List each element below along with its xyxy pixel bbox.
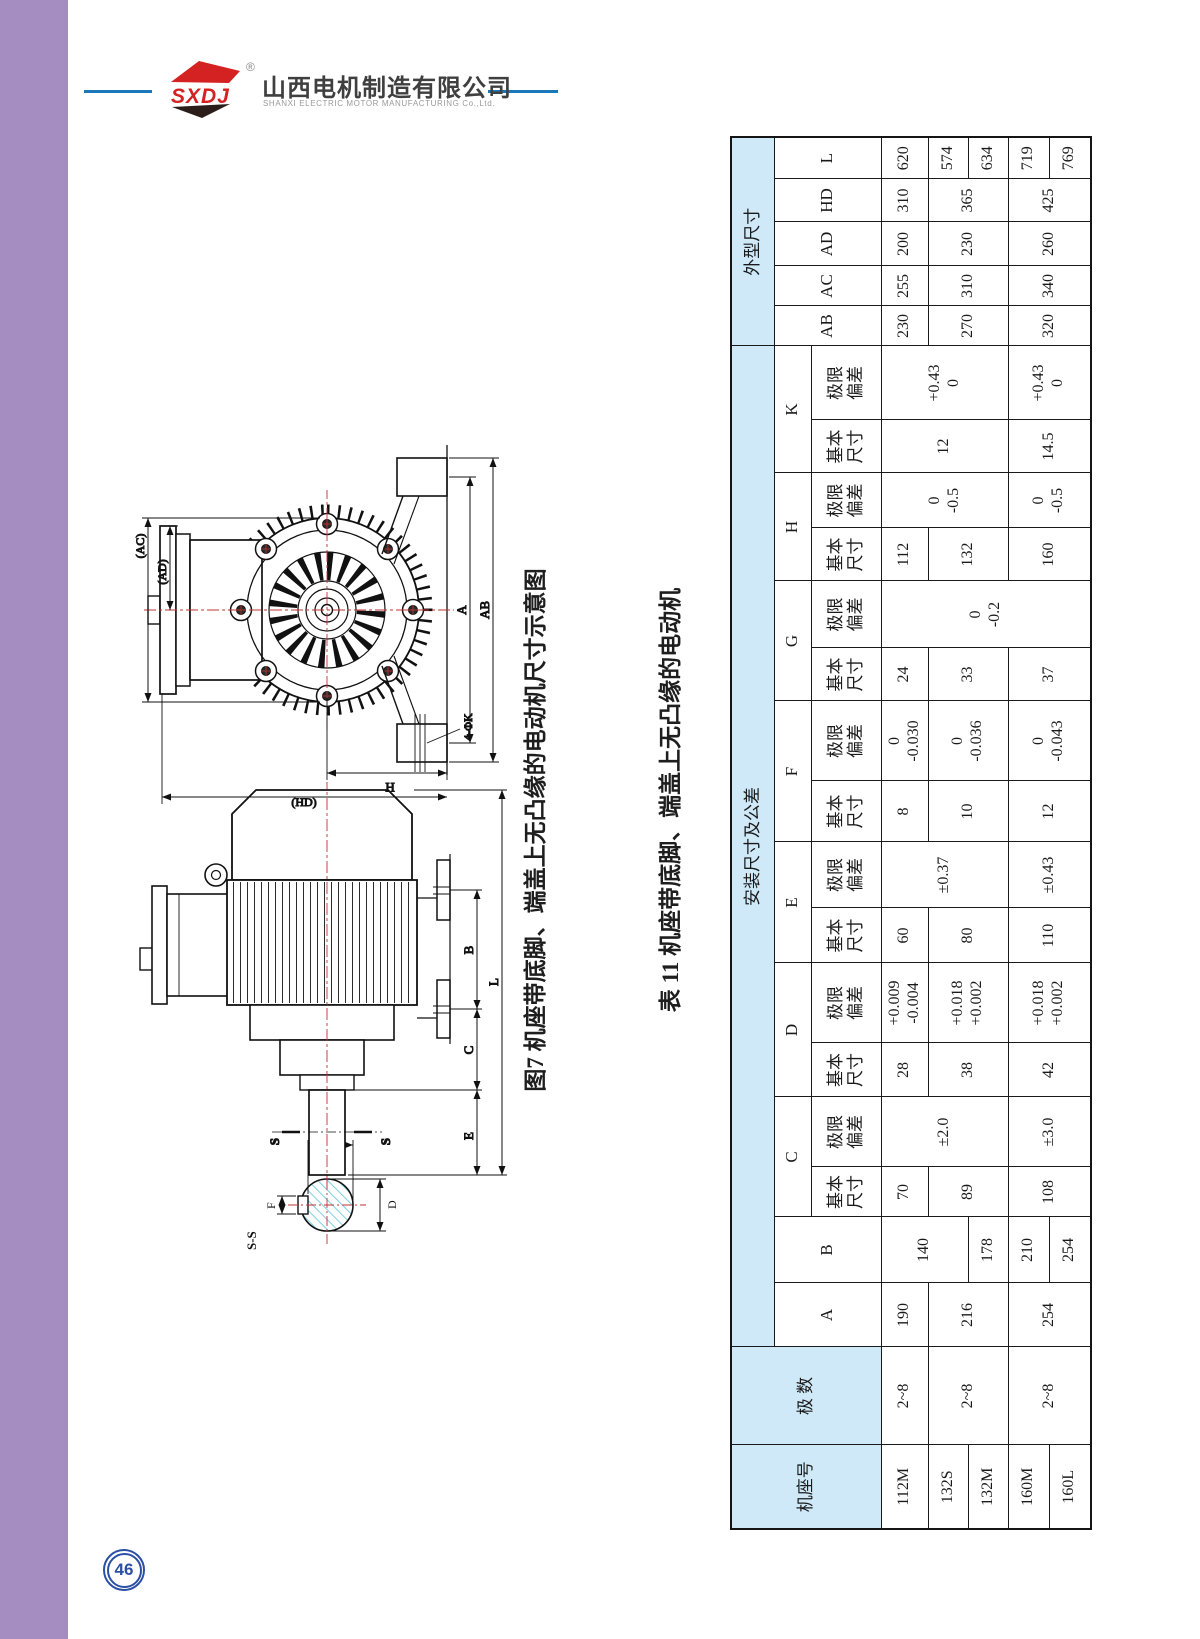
section-view-title: S-S: [244, 1231, 259, 1250]
dim-label-B: B: [461, 945, 476, 954]
company-name-cn: 山西电机制造有限公司: [262, 68, 492, 103]
cell-112M-H: 112: [881, 528, 928, 581]
cell-112M-E: 60: [881, 908, 928, 963]
cell-G-tol-all: 0 -0.2: [881, 581, 1091, 648]
cell-132S-poles: 2~8: [928, 1347, 1008, 1445]
cell-160M-F: 12: [1008, 781, 1091, 842]
header-col-A: A: [774, 1283, 881, 1347]
cell-112M-H-tol: 0 -0.5: [881, 473, 1008, 528]
cell-132S-F-tol: 0 -0.036: [928, 701, 1008, 781]
page-number: 46: [107, 1553, 142, 1588]
cell-112M-poles: 2~8: [881, 1347, 928, 1445]
header-G-basic: 基本 尺寸: [811, 648, 881, 701]
header-K-tol: 极限 偏差: [811, 346, 881, 420]
cell-160M-G: 37: [1008, 648, 1091, 701]
cell-132S-F: 10: [928, 781, 1008, 842]
header-G-tol: 极限 偏差: [811, 581, 881, 648]
header-mounting-group: 安装尺寸及公差: [731, 346, 774, 1347]
header-col-D: D: [774, 963, 811, 1097]
dim-label-AC: (AC): [133, 534, 147, 559]
cell-132M-B: 178: [968, 1217, 1008, 1283]
cell-112M-D: 28: [881, 1043, 928, 1097]
cell-160M-HD: 425: [1008, 179, 1091, 222]
figure7-drawing: S-S F G D: [132, 138, 512, 1530]
cell-132S-C: 89: [928, 1167, 1008, 1217]
header-K-basic: 基本 尺寸: [811, 420, 881, 473]
cell-112M-AB: 230: [881, 306, 928, 346]
cell-132S-A: 216: [928, 1283, 1008, 1347]
cell-160M-D-tol: +0.018 +0.002: [1008, 963, 1091, 1043]
dim-label-AB: AB: [477, 601, 492, 619]
header-F-basic: 基本 尺寸: [811, 781, 881, 842]
header-col-B: B: [774, 1217, 881, 1283]
cell-160M-AD: 260: [1008, 222, 1091, 266]
cell-160M-C: 108: [1008, 1167, 1091, 1217]
cell-112M-L: 620: [881, 137, 928, 179]
table-row-160M: 160M 2~8 254 210 108 ±3.0 42 +0.018 +0.0…: [1008, 137, 1049, 1529]
header-H-basic: 基本 尺寸: [811, 528, 881, 581]
cell-112M-AD: 200: [881, 222, 928, 266]
cell-112M-G: 24: [881, 648, 928, 701]
header-poles: 极 数: [731, 1347, 881, 1445]
dim-label-AD: (AD): [155, 559, 169, 584]
cell-160M-AB: 320: [1008, 306, 1091, 346]
logo-roof-shape: [171, 61, 240, 83]
cell-132S-D: 38: [928, 1043, 1008, 1097]
header-D-tol: 极限 偏差: [811, 963, 881, 1043]
cell-132S-AD: 230: [928, 222, 1008, 266]
dim-label-H: H: [385, 780, 394, 795]
header-col-C: C: [774, 1097, 811, 1217]
header-E-tol: 极限 偏差: [811, 842, 881, 908]
table11-wrapper: 机座号 极 数 安装尺寸及公差 外型尺寸 A B C D E F G H: [730, 136, 1092, 1530]
cell-160M-poles: 2~8: [1008, 1347, 1091, 1445]
company-logo: SXDJ: [164, 56, 246, 118]
company-name-en: SHANXI ELECTRIC MOTOR MANUFACTURING Co.,…: [263, 99, 495, 108]
cell-160M-frame: 160M: [1008, 1445, 1049, 1529]
cell-160M-K: 14.5: [1008, 420, 1091, 473]
cell-132S-D-tol: +0.018 +0.002: [928, 963, 1008, 1043]
cell-160M-AC: 340: [1008, 266, 1091, 306]
section-mark-bottom: S: [378, 1138, 393, 1145]
cell-160M-L: 719: [1008, 137, 1049, 179]
header-overall-group: 外型尺寸: [731, 137, 774, 346]
cell-160M-D: 42: [1008, 1043, 1091, 1097]
header-col-AC: AC: [774, 266, 881, 306]
figure7-caption: 图7 机座带底脚、端盖上无凸缘的电动机尺寸示意图: [516, 460, 550, 1200]
motor-side-view: S S: [140, 782, 507, 1188]
cell-112M-C: 70: [881, 1167, 928, 1217]
cell-112M-K: 12: [881, 420, 1008, 473]
cell-112M-F-tol: 0 -0.030: [881, 701, 928, 781]
dim-label-D: D: [385, 1200, 399, 1209]
header-F-tol: 极限 偏差: [811, 701, 881, 781]
rotated-content-block: S-S F G D: [132, 138, 1092, 1530]
cell-112M-HD: 310: [881, 179, 928, 222]
header-col-H: H: [774, 473, 811, 581]
cell-112M-E-tol: ±0.37: [881, 842, 1008, 908]
cell-160L-B: 254: [1049, 1217, 1091, 1283]
cell-132S-HD: 365: [928, 179, 1008, 222]
header-E-basic: 基本 尺寸: [811, 908, 881, 963]
header-H-tol: 极限 偏差: [811, 473, 881, 528]
cell-132S-AB: 270: [928, 306, 1008, 346]
dim-label-C: C: [461, 1046, 476, 1055]
header-frame: 机座号: [731, 1445, 881, 1529]
cell-112M-C-tol: ±2.0: [881, 1097, 1008, 1167]
cell-160M-C-tol: ±3.0: [1008, 1097, 1091, 1167]
left-purple-band: [0, 0, 68, 1639]
cell-112M-D-tol: +0.009 -0.004: [881, 963, 928, 1043]
cell-132S-L: 574: [928, 137, 968, 179]
header-col-F: F: [774, 701, 811, 842]
dim-label-4-phi-K: 4-ΦK: [461, 713, 475, 741]
cell-160L-L: 769: [1049, 137, 1091, 179]
header-C-basic: 基本 尺寸: [811, 1167, 881, 1217]
cell-160M-F-tol: 0 -0.043: [1008, 701, 1091, 781]
motor-end-view: 4-ΦK (AC) (AD) A: [133, 445, 499, 809]
cell-112M-frame: 112M: [881, 1445, 928, 1529]
dim-label-HD: (HD): [291, 795, 316, 809]
cell-160M-E: 110: [1008, 908, 1091, 963]
cell-132S-AC: 310: [928, 266, 1008, 306]
header-col-HD: HD: [774, 179, 881, 222]
header-col-AB: AB: [774, 306, 881, 346]
header-D-basic: 基本 尺寸: [811, 1043, 881, 1097]
header-col-AD: AD: [774, 222, 881, 266]
cell-112M-B: 140: [881, 1217, 968, 1283]
header-col-L: L: [774, 137, 881, 179]
header-col-K: K: [774, 346, 811, 473]
cell-160M-H-tol: 0 -0.5: [1008, 473, 1091, 528]
cell-132S-G: 33: [928, 648, 1008, 701]
cell-132M-L: 634: [968, 137, 1008, 179]
header-C-tol: 极限 偏差: [811, 1097, 881, 1167]
cell-132S-E: 80: [928, 908, 1008, 963]
section-mark-top: S: [267, 1138, 282, 1145]
cell-160M-B: 210: [1008, 1217, 1049, 1283]
catalog-page: SXDJ ® 山西电机制造有限公司 SHANXI ELECTRIC MOTOR …: [0, 0, 1200, 1639]
header-rule-left: [84, 90, 152, 93]
registered-mark: ®: [246, 60, 255, 74]
page-number-badge: 46: [103, 1549, 145, 1591]
table-row-132S: 132S 2~8 216 89 38 +0.018 +0.002 80 10 0…: [928, 137, 968, 1529]
header-col-E: E: [774, 842, 811, 963]
table-row-112M: 112M 2~8 190 140 70 ±2.0 28 +0.009 -0.00…: [881, 137, 928, 1529]
dimension-table: 机座号 极 数 安装尺寸及公差 外型尺寸 A B C D E F G H: [730, 136, 1092, 1530]
header-col-G: G: [774, 581, 811, 701]
cell-132S-frame: 132S: [928, 1445, 968, 1529]
cell-160M-E-tol: ±0.43: [1008, 842, 1091, 908]
cell-132M-frame: 132M: [968, 1445, 1008, 1529]
cell-160M-K-tol: +0.43 0: [1008, 346, 1091, 420]
cell-132S-H: 132: [928, 528, 1008, 581]
dim-label-F: F: [264, 1202, 278, 1209]
cell-160L-frame: 160L: [1049, 1445, 1091, 1529]
cell-160M-H: 160: [1008, 528, 1091, 581]
dim-label-L: L: [486, 978, 501, 986]
cell-112M-F: 8: [881, 781, 928, 842]
cell-112M-AC: 255: [881, 266, 928, 306]
dim-label-A: A: [454, 605, 469, 615]
dim-label-E: E: [461, 1132, 476, 1140]
cell-112M-A: 190: [881, 1283, 928, 1347]
cell-160M-A: 254: [1008, 1283, 1091, 1347]
cell-112M-K-tol: +0.43 0: [881, 346, 1008, 420]
table11-title: 表 11 机座带底脚、端盖上无凸缘的电动机: [651, 450, 685, 1150]
